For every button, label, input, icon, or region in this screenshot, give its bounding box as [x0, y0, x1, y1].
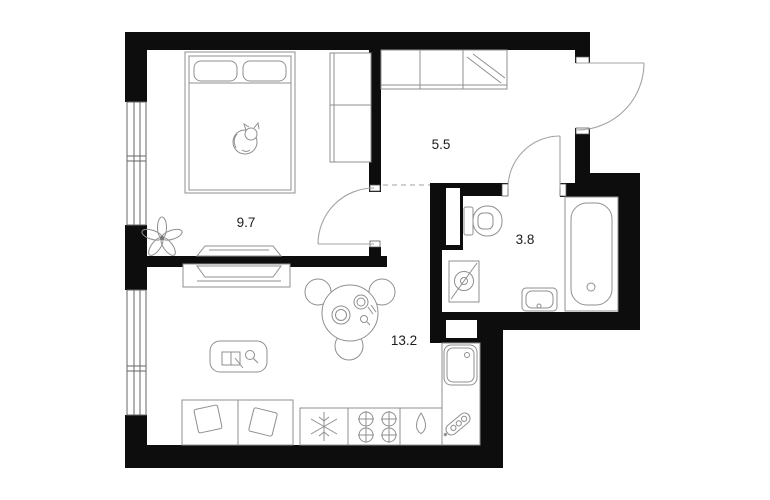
sofa-icon	[182, 400, 293, 445]
kitchen-sink-icon	[444, 345, 477, 385]
vent-shaft-icon	[446, 320, 477, 338]
wall-bottom	[125, 445, 503, 468]
floor-plan: 9.7 5.5 3.8 13.2	[0, 0, 770, 500]
pillow-icon	[194, 405, 222, 433]
wall-bathroom-bottom	[480, 312, 640, 330]
hallway-furniture	[381, 50, 507, 89]
door-swing-icon	[508, 136, 560, 188]
wall-bathroom-top-right	[560, 183, 618, 197]
hallway-area-label: 5.5	[432, 137, 451, 152]
wall-left-upper	[125, 32, 147, 102]
bedroom-furniture	[141, 52, 371, 258]
coffee-table-icon	[210, 341, 267, 372]
vent-shaft-icon	[446, 188, 460, 245]
plant-icon	[141, 217, 184, 258]
tv-icon	[197, 246, 281, 256]
floor-plan-page: 9.7 5.5 3.8 13.2	[0, 0, 770, 500]
bathtub-icon	[565, 197, 618, 311]
wall-top	[125, 32, 590, 50]
door-swing-icon	[577, 63, 644, 130]
wall-right-bathroom	[618, 187, 640, 330]
wall-entry-lower	[575, 128, 590, 173]
living-kitchen-area-label: 13.2	[391, 333, 417, 348]
window-icon	[127, 290, 146, 415]
double-bed-icon	[185, 52, 295, 193]
washing-machine-icon	[449, 261, 479, 302]
wardrobe-icon	[330, 53, 371, 162]
bedroom-area-label: 9.7	[237, 215, 256, 230]
wardrobe-icon	[381, 50, 507, 89]
bathroom-sink-icon	[522, 288, 557, 311]
dining-table-icon	[305, 279, 395, 360]
tv-console-icon	[183, 264, 290, 287]
door-swing-icon	[318, 188, 374, 244]
bathroom-fixtures	[449, 197, 618, 311]
wall-living-bathroom	[430, 183, 442, 343]
pillow-icon	[248, 407, 277, 436]
bathroom-area-label: 3.8	[516, 232, 535, 247]
wall-right-living	[480, 317, 503, 468]
window-icon	[127, 102, 146, 225]
wall-door-stub	[369, 247, 381, 257]
toilet-icon	[464, 206, 502, 236]
